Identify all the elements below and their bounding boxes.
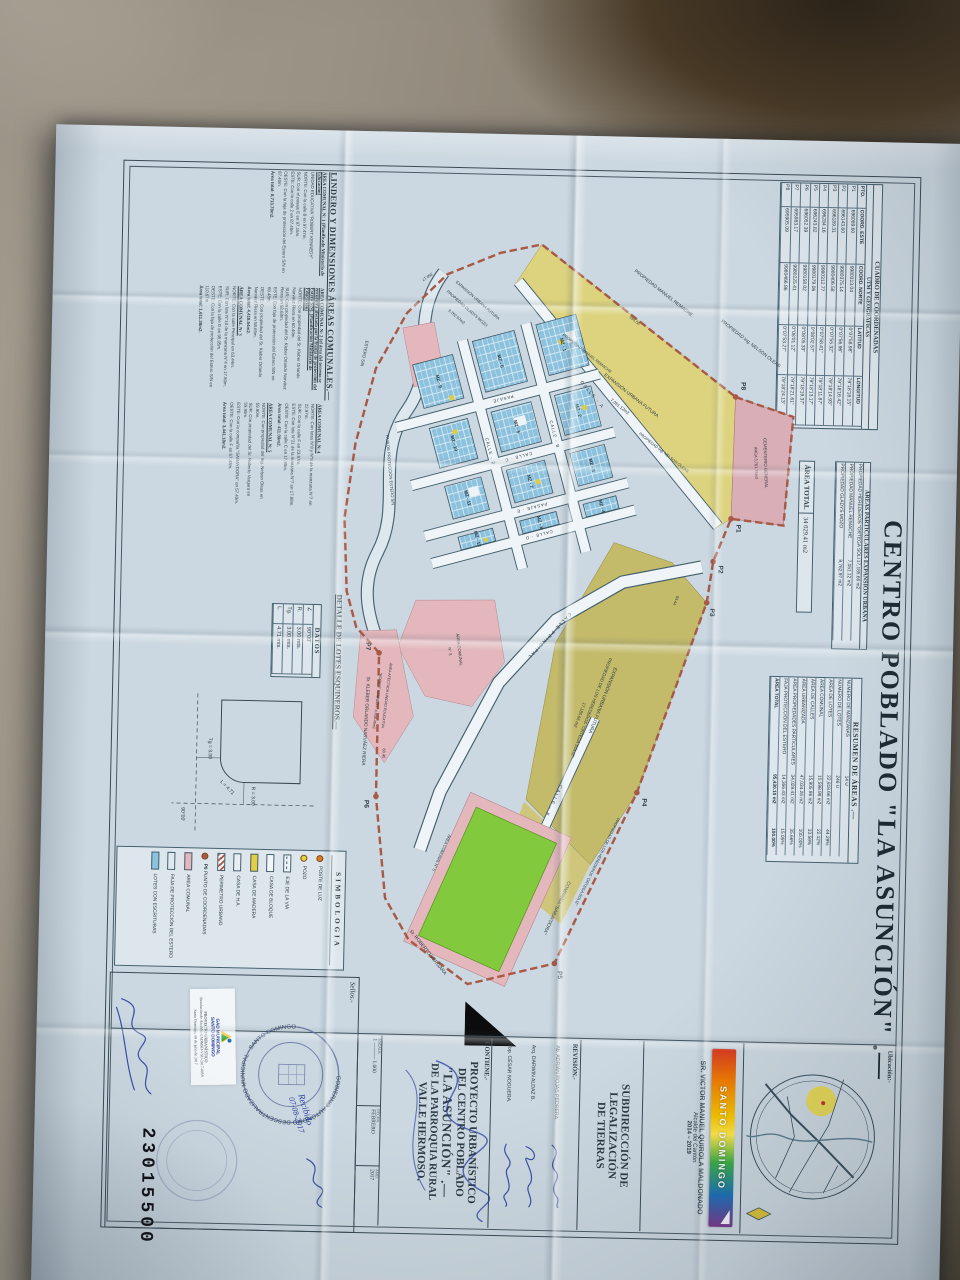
legend-label: POSTE DE LUZ [317,866,323,901]
cell: 3.00 mts. [291,624,302,674]
communal-area-icon [184,852,192,870]
reviser-name: Top. CÉSAR NOGUERA. [504,1044,512,1140]
svg-text:P6: P6 [362,800,369,809]
radius-label: R = 3.00 [249,787,255,806]
section-heading: ÁREA COMUNAL N: 4 [314,404,321,510]
paper-map-sheet: CENTRO POBLADO "LA ASUNCIÓN" .— CUADRO D… [31,124,960,1280]
year-value: 2017 [367,1169,374,1222]
block-house-icon [266,854,274,872]
well-icon [300,855,307,862]
revision-block: REVISIÓN.- Ab. ADRIÁN ROJAS PEDRERA. Arq… [487,1038,580,1230]
seals-box: Sellos.- GOBIERNO AUTÓNOMO DESCENTRALIZA… [104,972,360,1233]
road-axis-icon [283,854,291,872]
datos-title: DATOS [311,605,321,677]
outside-property-label: PROPIEDAD MANUEL REMACHE [633,268,693,317]
seals-label: Sellos.- [348,982,356,1003]
svg-text:P2: P2 [717,565,724,574]
p0-tag: P0 [202,864,207,870]
section-line: SUR: Con propiedad del Sr. Kleber Orland… [276,287,290,393]
gad-resolution-card: GAD MUNICIPAL SANTO DOMINGO PROYECTO URB… [190,989,236,1086]
section-heading: ÁREA COMUNAL N: 3 [235,286,242,392]
corner-lot-diagram: R = 3.00 Tg = 3.00 L = 4.71 90°00' [121,684,324,838]
wood-house-icon [250,854,258,872]
boundaries-text-block: LINDERO Y DIMENSIONES ÁREAS COMUNALES.— … [124,168,339,510]
light-pole-icon [317,855,324,862]
svg-text:P8: P8 [739,382,746,391]
coordinate-point-icon [201,853,208,860]
section-line: SUR: Con propiedad del Sr. Roberto Verga… [240,402,254,508]
cell: L. [272,604,282,624]
reviser-name: Arq. DARWIN ALDAZ B. [528,1045,536,1141]
signature [519,1141,543,1211]
cell: 4.71 mts. [271,624,282,674]
svg-text:N° 3: N° 3 [447,647,453,656]
registry-number: 23015500 [135,1127,158,1246]
department-line: SUBDIRECCIÓN DE LEGALIZACIÓN [604,1040,632,1230]
svg-text:P5: P5 [556,971,563,980]
section-line: NORTE: Con propiedad del Ing. Nelson Ole… [252,403,266,509]
river [746,1134,872,1143]
signature [495,1140,519,1210]
communal-area-section: ÁREA COMUNAL N: 5 NORTE: Con propiedad d… [219,402,272,509]
location-map [742,1043,896,1236]
legend-label: CASA DE H.A. [234,875,240,907]
protection-strip-icon [167,852,175,870]
svg-text:ÁREA 3,761.75m2: ÁREA 3,761.75m2 [753,447,759,479]
cell: Tg. [282,604,292,624]
urban-perimeter-icon [217,853,225,871]
section-line: ESTE: Con faja de protección del Estero … [264,287,278,393]
deeded-lots-icon [151,851,159,869]
revision-label: REVISIÓN.- [567,1044,578,1230]
legend-label: EJE DE LA VIA [283,876,289,909]
section-line: OESTE: Con propiedad del Sr. Kleber Orla… [251,287,265,393]
contents-block: CONTIENE.- PROYECTO URBANÍSTICO DEL CENT… [377,1036,492,1228]
legend-title: SIMBOLOGIA [329,855,342,965]
contains-label: CONTIENE.- [479,1042,490,1228]
gad-logo-icon [220,1030,232,1044]
section-line: NORTE: Con propiedad del Sr. Kleber Orla… [289,287,303,393]
svg-text:P1: P1 [734,525,741,534]
round-stamp: GOBIERNO AUTÓNOMO DESCENTRALIZADO MUNICI… [231,1015,350,1134]
arc-length-label: L = 4.71 [219,779,236,796]
datos-table: DATOS ∠90°00' R.3.00 mts. Tg.3.00 mts. L… [270,603,322,678]
section-heading: ÁREA COMUNAL N: 5 [265,403,272,509]
authority-block: SANTO DOMINGO SR. VICTOR MANUEL QUIROLA … [639,1041,740,1233]
gad-line: Santo Domingo, 06 de julio de 2017 [193,992,198,1082]
svg-text:9,762.97m2: 9,762.97m2 [447,308,466,325]
hummingbird-icon [720,1210,729,1224]
angle-label: 90°00' [179,807,185,821]
street-axis [195,693,198,830]
section-line: NORTE: Con lotes N°8 y N°9 de la manzana… [301,404,315,510]
section-heading: ÁREA COMUNAL N: 1 (Planificado Ministeri… [314,172,326,278]
urban-plan-map: MZ - 1MZ - 2 MZ - 3MZ - 4 MZ - 6MZ - 5 M… [328,161,877,1048]
svg-text:P7: P7 [364,642,371,651]
cell: 90°00' [301,625,312,675]
signature [543,1141,567,1211]
signature [107,989,168,1104]
svg-text:P4: P4 [640,798,647,807]
legend-label: POZO [301,866,306,880]
legend-label: CASA DE MADERA [250,876,256,919]
legend-label: PUNTO DE COORDENADAS [200,871,206,935]
communal-area-section: ÁREA COMUNAL N: 3 NORTE: Con la calle Pr… [195,285,242,392]
reviser-name: Ab. ADRIÁN ROJAS PEDRERA. [552,1045,560,1141]
cell: 3.00 mts. [281,624,292,674]
street-axis [172,803,314,806]
legend-label: CASA DE BLOQUE [267,876,273,918]
legend-label: AREA COMUNAL [184,874,190,912]
section-heading: ÁREA COMUNAL N: 2 (el área del terreno s… [301,288,323,394]
faint-stamp [150,1114,244,1208]
plan-document: CENTRO POBLADO "LA ASUNCIÓN" .— CUADRO D… [94,154,927,1251]
date-value: FEBRERO [369,1109,376,1162]
section-line: OESTE: Con la faja de protección del Est… [202,285,216,391]
dimension: 60.40 [381,748,386,759]
communal-area-section: ÁREA COMUNAL N: 2 (el área del terreno s… [244,286,324,394]
legend: SIMBOLOGIA POSTE DE LUZ POZO EJE DE LA V… [114,846,347,971]
santo-domingo-logo: SANTO DOMINGO [708,1049,736,1227]
legend-label: FAJA DE PROTECCIÓN DEL ESTERO [167,874,174,958]
communal-area-section: ÁREA COMUNAL N: 1 (Planificado Ministeri… [267,171,326,278]
tangent-label: Tg = 3.00 [207,738,213,760]
cell: ∠ [302,605,312,625]
legend-label: LOTES CON ESCRITURAS [151,873,157,933]
cell: R. [292,604,302,624]
concrete-house-icon [233,853,241,871]
photo-scene: CENTRO POBLADO "LA ASUNCIÓN" .— CUADRO D… [0,0,960,1280]
brand-name: SANTO DOMINGO [708,1049,736,1227]
outside-property-label: PROPIEDAD Ing. NELSON OLEAS [720,319,781,369]
department-block: SUBDIRECCIÓN DE LEGALIZACIÓN DE TIERRAS [576,1040,644,1231]
legend-label: PERIMETRO URBANO [217,875,223,925]
svg-text:ESTERO S/N: ESTERO S/N [360,340,370,367]
section-line: OESTE: Con la faja de protección del Est… [274,171,288,277]
signature [294,1153,335,1214]
svg-text:P3: P3 [708,608,715,617]
highlighted-town [806,1086,837,1117]
location-inset: Ubicación:- [739,1043,896,1236]
compass-icon [747,1208,771,1221]
communal-area-section: ÁREA COMUNAL N: 4 NORTE: Con lotes N°8 y… [274,403,321,510]
